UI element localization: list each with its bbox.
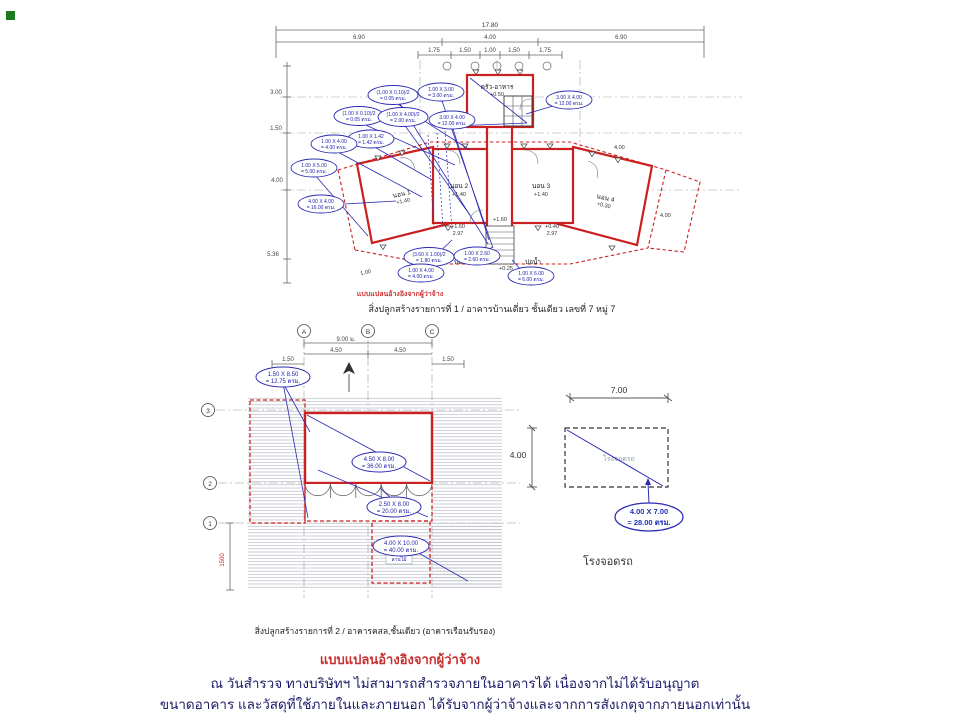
bedroom3-label: นอน 3	[532, 183, 551, 190]
garage-diagonal	[567, 430, 663, 486]
dim-sub-1: 1.75	[428, 48, 440, 54]
area-oval: 1.00 X 6.00 = 6.00 ตรม.	[508, 267, 554, 285]
oval-area: = 36.00 ตรม.	[362, 463, 397, 470]
area-oval: (1.00 X 4.00)/2 = 2.00 ตรม.	[378, 108, 428, 127]
north-arrow-icon	[343, 362, 355, 392]
area-oval: 2.50 X 8.00 = 20.00 ตรม.	[367, 497, 421, 517]
oval-area: = 4.00 ตรม.	[321, 145, 347, 151]
dim-sub-2: 1.50	[459, 48, 471, 54]
oval-area: = 12.00 ตรม.	[555, 101, 584, 107]
oval-area: = 2.60 ตรม.	[464, 257, 490, 263]
oval-area: = 40.00 ตรม.	[384, 547, 419, 554]
area-oval: (1.00 X 0.10)/2 = 0.05 ตรม.	[334, 107, 384, 126]
garage-arrow-line	[648, 483, 649, 503]
grid-bubble-B: B	[366, 329, 370, 336]
oval-area: = 20.00 ตรม.	[377, 508, 412, 515]
oval-size: 2.50 X 8.00	[379, 502, 410, 508]
area-oval: 3.00 X 4.00 = 12.00 ตรม.	[546, 91, 592, 109]
oval-area: = 12.75 ตรม.	[266, 378, 301, 385]
plan2-red-dim: 1500	[220, 553, 226, 567]
deck-label: ลานไม้	[391, 556, 406, 563]
area-oval: 3.00 X 4.00 = 12.00 ตรม.	[429, 111, 475, 129]
plan2-dim-half1: 4.50	[330, 348, 342, 354]
area-oval: 4.00 X 4.00 = 16.00 ตรม.	[298, 195, 344, 213]
area-oval: 1.50 X 8.50 = 12.75 ตรม.	[256, 367, 310, 387]
oval-area: = 0.05 ตรม.	[346, 117, 372, 123]
bedroom2-level: +1.40	[452, 192, 466, 198]
grid-bubble-A: A	[302, 329, 307, 336]
oval-area: = 5.00 ตรม.	[301, 169, 327, 175]
wing-top-dim: 4.00	[614, 145, 625, 151]
garage-inner-label: โรงจอดรถ	[603, 454, 635, 463]
grid-bubble-1: 1	[208, 521, 212, 528]
dim-span-mid: 4.00	[484, 35, 496, 41]
area-oval: (1.00 X 0.10)/2 = 0.05 ตรม.	[368, 86, 418, 105]
grid-bubble-3: 3	[206, 408, 210, 415]
garage-caption: โรงจอดรถ	[583, 554, 633, 568]
oval-area: = 4.00 ตรม.	[408, 274, 434, 280]
oval-size: 4.00 X 7.00	[630, 507, 668, 516]
plan2-red-dim-group: 1500	[220, 553, 226, 567]
oval-area: = 12.00 ตรม.	[438, 121, 467, 127]
drawings-canvas: 17.80 6.90 4.00 6.90 1.75 1.50 1.00 1.50…	[0, 0, 960, 645]
area-oval: 1.00 X 3.00 = 3.00 ตรม.	[418, 83, 464, 101]
area-oval: 1.00 X 4.00 = 4.00 ตรม.	[398, 264, 444, 282]
plan1-caption: สิ่งปลูกสร้างรายการที่ 1 / อาคารบ้านเดี่…	[369, 302, 616, 315]
dim-span-left: 6.90	[353, 35, 365, 41]
diag-dim: 1.00	[360, 269, 372, 277]
plan2-building-drawing: A B C 3 2 1 9.00 ม. 4.50 4.50 1.50 1.50	[202, 325, 521, 638]
dim-left-4: 5.36	[267, 252, 279, 258]
oval-area: = 0.05 ตรม.	[380, 96, 406, 102]
grid-bubble-C: C	[430, 329, 435, 336]
survey-note-line1: ณ วันสำรวจ ทางบริษัทฯ ไม่สามารถสำรวจภายใ…	[130, 672, 780, 694]
plan2-caption: สิ่งปลูกสร้างรายการที่ 2 / อาคารคสล,ชั้น…	[255, 625, 496, 637]
diag-dim-group: 1.00	[360, 269, 372, 277]
garage-dim-width: 7.00	[611, 385, 628, 395]
mark-4: +0.40	[545, 224, 559, 230]
oval-size: 1.50 X 8.50	[268, 372, 299, 378]
oval-area: = 1.42 ตรม.	[358, 140, 384, 146]
mark-3: +1.60	[493, 217, 507, 223]
area-oval: 1.00 X 2.60 = 2.60 ตรม.	[454, 247, 500, 265]
survey-note-line2: ขนาดอาคาร และวัสดุที่ใช้ภายในและภายนอก ไ…	[130, 693, 780, 715]
plan1-red-ref-note: แบบแปลนอ้างอิงจากผู้ว่าจ้าง	[357, 289, 444, 299]
kitchen-label: ครัว-อาหาร	[481, 83, 514, 91]
garage-dim-height: 4.00	[510, 450, 527, 460]
garage-diagram: 7.00 4.00 โรงจอดรถ 4.00 X 7.00 = 28.00 ต…	[510, 385, 683, 568]
bedroom3-level: +1.40	[534, 192, 548, 198]
dim-sub-3: 1.00	[484, 48, 496, 54]
dim-left-2: 1.50	[270, 126, 282, 132]
grid-bubble-2: 2	[208, 481, 212, 488]
garage-dim-lines	[527, 393, 672, 490]
kitchen-room	[467, 75, 533, 127]
oval-area: = 28.00 ตรม.	[627, 518, 670, 527]
reference-note-heading: แบบแปลนอ้างอิงจากผู้ว่าจ้าง	[240, 649, 560, 670]
oval-area: = 1.80 ตรม.	[416, 258, 442, 264]
oval-area: = 3.00 ตรม.	[428, 93, 454, 99]
kitchen-level: +0.50	[490, 92, 504, 98]
dim-sub-4: 1.50	[508, 48, 520, 54]
dim-sub-5: 1.75	[539, 48, 551, 54]
area-oval: 4.50 X 8.00 = 36.00 ตรม.	[352, 452, 406, 472]
well-right-label: บ่อน้ำ	[525, 257, 541, 266]
dim-left-1: 3.00	[270, 90, 282, 96]
area-oval: (3.60 X 1.00)/2 = 1.80 ตรม.	[404, 248, 454, 267]
dim-span-right: 6.90	[615, 35, 627, 41]
area-oval: 4.00 X 7.00 = 28.00 ตรม.	[615, 503, 683, 531]
oval-size: 4.50 X 8.00	[364, 457, 395, 463]
area-oval: 1.00 X 4.00 = 4.00 ตรม.	[311, 135, 357, 153]
plan2-dim-edge1: 1.50	[282, 357, 294, 363]
oval-area: = 16.00 ตรม.	[307, 205, 336, 211]
area-oval: 1.00 X 5.00 = 5.00 ตรม.	[291, 159, 337, 177]
plan2-dim-total: 9.00 ม.	[337, 337, 356, 343]
wing-side-dim: 4.00	[660, 213, 671, 219]
plan1-house-drawing: 17.80 6.90 4.00 6.90 1.75 1.50 1.00 1.50…	[267, 22, 742, 315]
oval-size: 4.00 X 10.00	[384, 541, 419, 547]
dim-total: 17.80	[482, 22, 499, 29]
mark-2: 2.97	[453, 231, 464, 237]
plan2-dim-half2: 4.50	[394, 348, 406, 354]
mark-5: 2.97	[547, 231, 558, 237]
area-oval: 4.00 X 10.00 = 40.00 ตรม.	[373, 536, 429, 556]
oval-area: = 2.00 ตรม.	[390, 118, 416, 124]
dim-left-3: 4.00	[271, 178, 283, 184]
mark-1: +1.60	[451, 224, 465, 230]
plan2-dim-edge2: 1.50	[442, 357, 454, 363]
oval-area: = 6.00 ตรม.	[518, 277, 544, 283]
bedroom2-label: นอน 2	[450, 183, 469, 190]
